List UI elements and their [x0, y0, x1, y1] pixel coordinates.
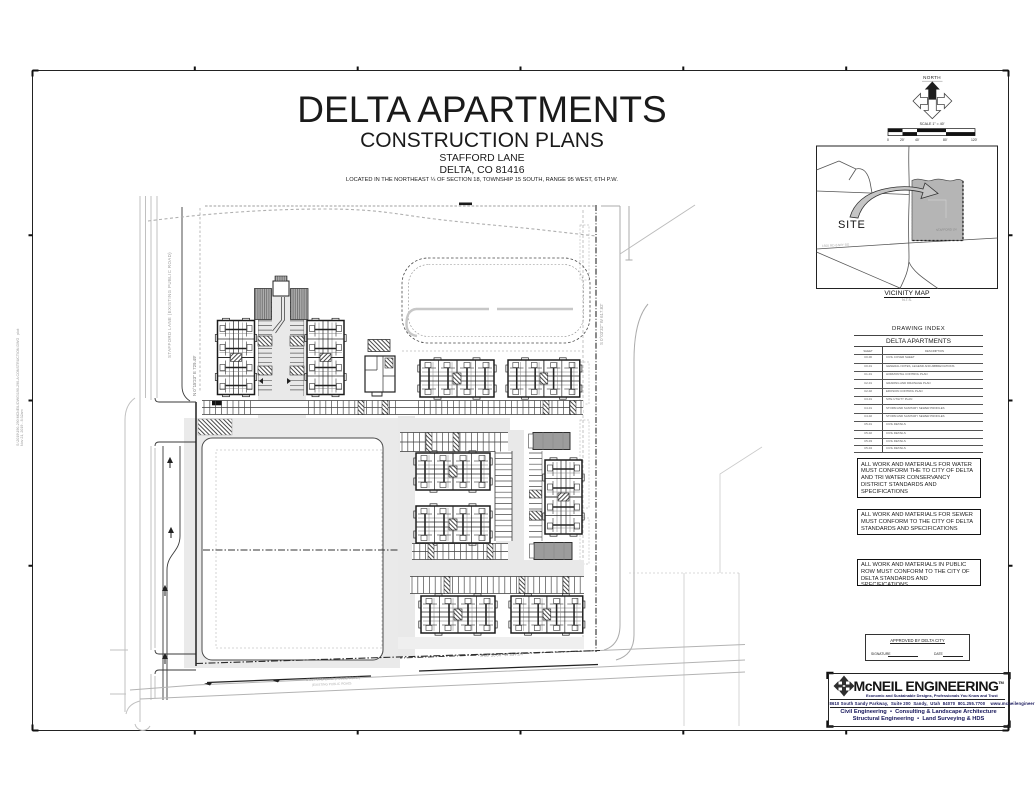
- svg-text:STAFFORD LN: STAFFORD LN: [936, 227, 957, 232]
- svg-text:STAFFORD LANE (PUBLIC ROAD): STAFFORD LANE (PUBLIC ROAD): [306, 676, 360, 682]
- svg-text:N 0°15'23" E 729.49': N 0°15'23" E 729.49': [192, 355, 197, 396]
- svg-text:(EXISTING PUBLIC ROAD): (EXISTING PUBLIC ROAD): [312, 681, 352, 687]
- svg-text:S 0°03'32" W 617.82': S 0°03'32" W 617.82': [599, 303, 604, 345]
- svg-text:STAFFORD LANE (EXISTING PUBLI: STAFFORD LANE (EXISTING PUBLIC ROAD): [167, 252, 172, 358]
